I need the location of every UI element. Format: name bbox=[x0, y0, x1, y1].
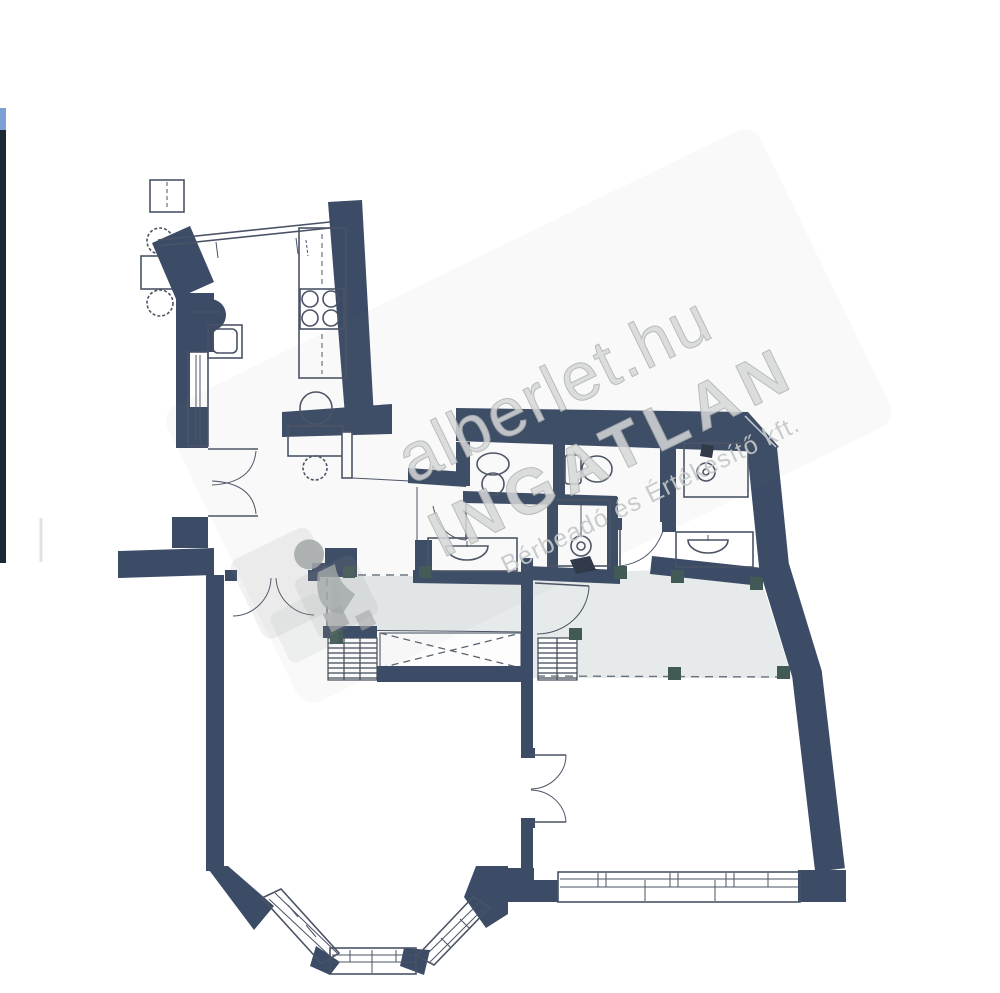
fridge-inner bbox=[213, 329, 237, 353]
stove-burner bbox=[302, 310, 318, 326]
stove-burner bbox=[323, 310, 339, 326]
wall-bottom-mid bbox=[508, 868, 558, 902]
wall-column-round bbox=[194, 299, 226, 331]
wall-center-vertical-lower bbox=[521, 822, 533, 872]
double-door-rooms bbox=[530, 755, 566, 822]
bay-window-left bbox=[262, 889, 339, 964]
wall-corner-bottomright bbox=[798, 870, 846, 902]
stove-burner bbox=[302, 291, 318, 307]
floor-plan-page: alberlet.hu INGATLAN Bérbeadó és Értékes… bbox=[0, 0, 1000, 993]
screen-edge-artifact bbox=[0, 108, 41, 563]
edge-bar bbox=[0, 108, 6, 563]
appliance-circle bbox=[147, 290, 173, 316]
edge-accent-square bbox=[0, 108, 6, 130]
wall-bay-wedge-midleft bbox=[310, 946, 340, 975]
wall-door-jamb bbox=[521, 748, 535, 758]
wall-outer-left bbox=[118, 548, 214, 578]
floor-plan-canvas: alberlet.hu INGATLAN Bérbeadó és Értékes… bbox=[0, 0, 1000, 993]
wall-gallery-bar bbox=[377, 666, 531, 682]
window-right-room bbox=[558, 872, 800, 902]
wall-bay-wedge-right bbox=[464, 866, 508, 928]
ladder-right bbox=[538, 638, 577, 680]
wall-door-jamb bbox=[521, 818, 535, 828]
wall-entry-jamb bbox=[172, 517, 208, 548]
wall-living-left bbox=[206, 575, 224, 871]
